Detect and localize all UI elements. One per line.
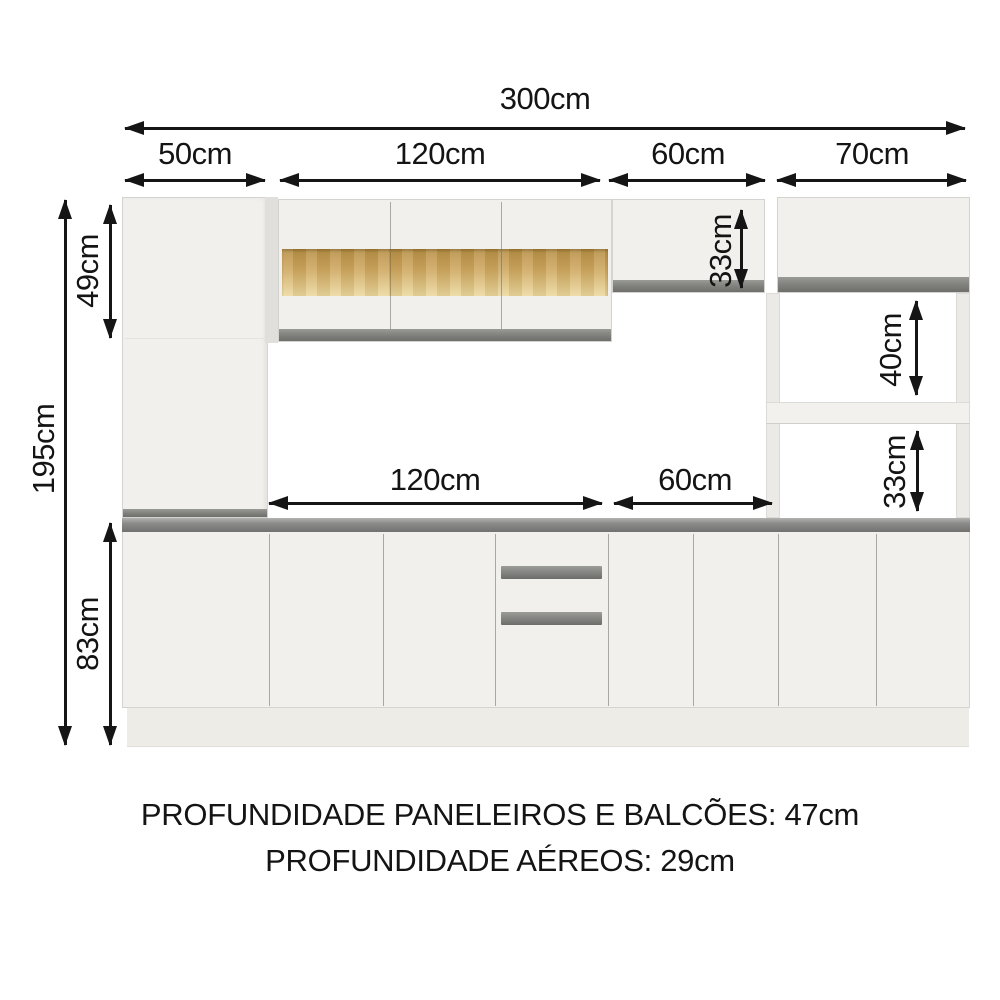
kitchen-dimension-diagram: 300cm 50cm 120cm 60cm 70cm 195cm 49cm 83…: [0, 0, 1000, 1000]
dim-arrow-total-width: [125, 127, 965, 130]
base-door-split: [495, 534, 496, 706]
dim-label-120cm-counter: 120cm: [390, 463, 481, 497]
dim-label-120cm-top: 120cm: [395, 137, 486, 171]
dim-label-total-width: 300cm: [500, 82, 591, 116]
base-door-split: [383, 534, 384, 706]
dim-arrow-120cm-top: [280, 179, 600, 182]
tower-niche-shelf: [766, 402, 970, 424]
dim-label-60cm-top: 60cm: [651, 137, 725, 171]
base-door-split: [693, 534, 694, 706]
dim-arrow-base-height: [109, 523, 112, 745]
paneleiro-door-seam: [125, 338, 265, 339]
dim-arrow-niche-top: [915, 301, 918, 395]
aereo-door-split: [390, 202, 391, 330]
toe-kick-plinth: [127, 708, 969, 747]
dim-arrow-120cm-counter: [269, 502, 602, 505]
tower-handle-strip: [778, 277, 969, 292]
dim-label-niche-bottom: 33cm: [877, 435, 913, 509]
aereo-handle-strip: [279, 329, 611, 341]
upper-cabinet-side-panel: [265, 197, 278, 343]
base-cabinet-run: [122, 532, 970, 708]
footer-depth-line1: PROFUNDIDADE PANELEIROS E BALCÕES: 47cm: [141, 797, 859, 833]
dim-arrow-flap-height: [740, 210, 743, 288]
dim-label-60cm-counter: 60cm: [658, 463, 732, 497]
drawer-handle: [501, 612, 602, 625]
dim-label-base-height: 83cm: [70, 597, 106, 671]
dim-label-upper-height: 49cm: [70, 234, 106, 308]
base-door-split: [778, 534, 779, 706]
dim-label-70cm: 70cm: [835, 137, 909, 171]
base-door-split: [876, 534, 877, 706]
cabinet-paneleiro-50cm: [122, 197, 268, 518]
countertop: [122, 518, 970, 532]
cabinet-aereo-120cm: [278, 199, 612, 342]
dim-label-50cm: 50cm: [158, 137, 232, 171]
base-door-split: [608, 534, 609, 706]
glass-wood-band: [282, 249, 608, 296]
base-door-split: [269, 534, 270, 706]
dim-label-niche-top: 40cm: [873, 313, 909, 387]
dim-arrow-total-height: [64, 200, 67, 745]
dim-arrow-70cm: [777, 179, 966, 182]
dim-arrow-50cm: [125, 179, 265, 182]
dim-arrow-60cm-top: [609, 179, 765, 182]
aereo-door-split: [501, 202, 502, 330]
footer-depth-line2: PROFUNDIDADE AÉREOS: 29cm: [265, 843, 735, 879]
dim-label-total-height: 195cm: [26, 404, 62, 495]
drawer-handle: [501, 566, 602, 579]
dim-arrow-upper-height: [109, 205, 112, 338]
dim-arrow-niche-bottom: [916, 431, 919, 511]
cabinet-tower-top-70cm: [777, 197, 970, 293]
paneleiro-handle-strip: [123, 509, 267, 517]
dim-arrow-60cm-counter: [614, 502, 772, 505]
